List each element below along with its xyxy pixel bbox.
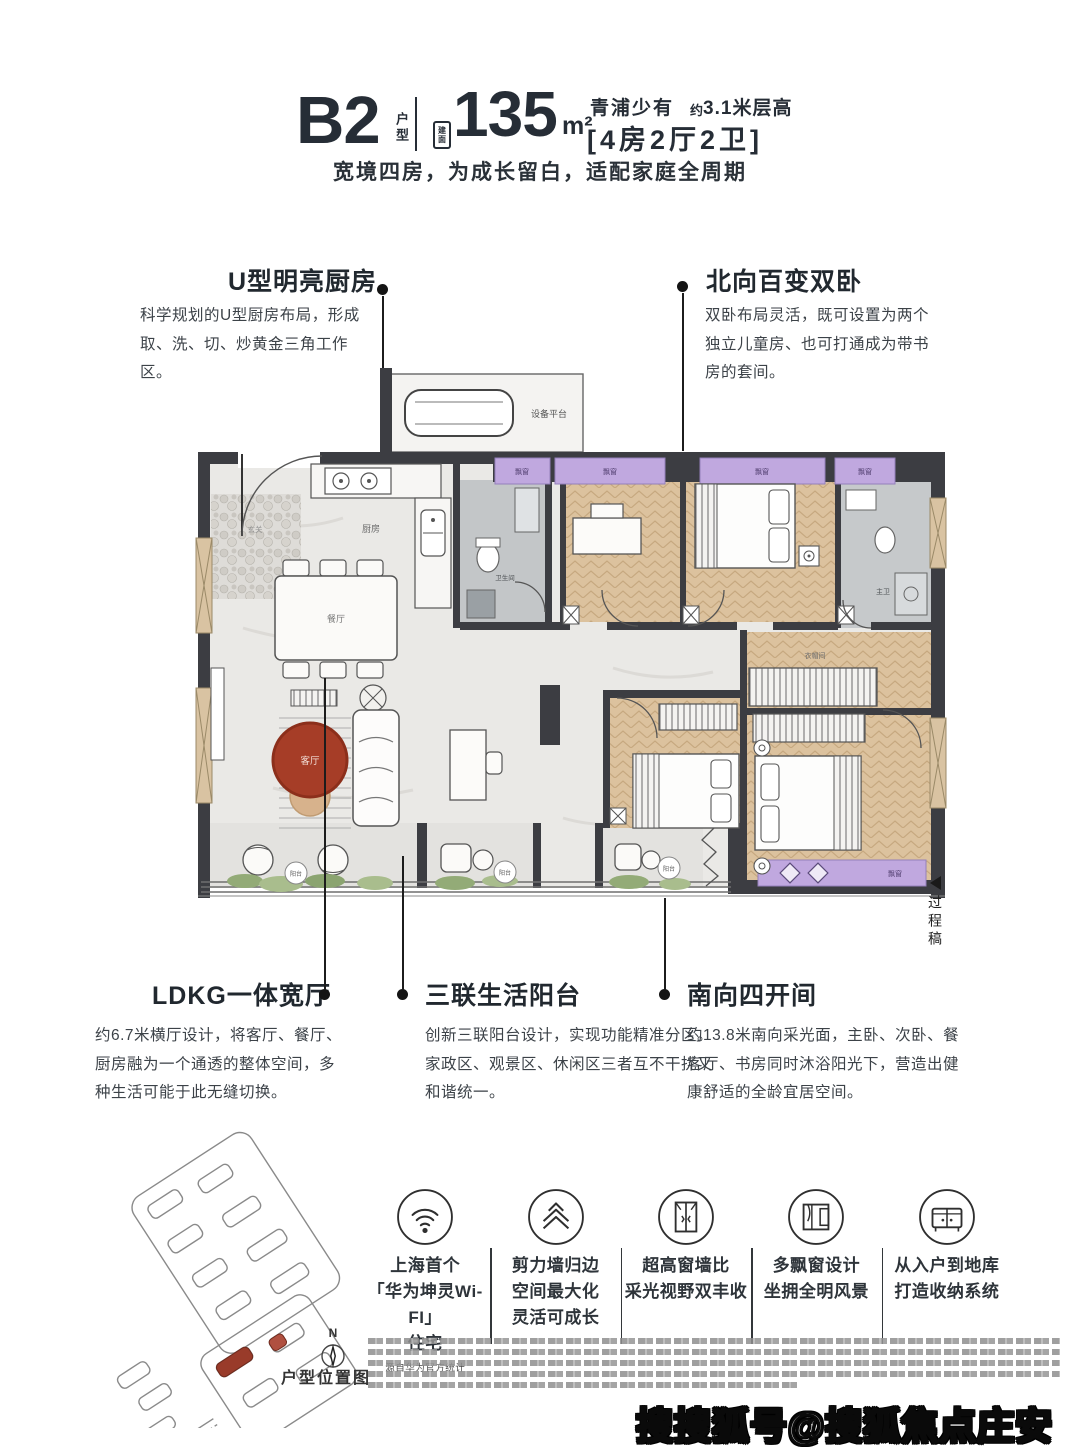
kitchen-label: 厨房 bbox=[362, 523, 380, 534]
callout-south-dot bbox=[659, 989, 670, 1000]
callout-balcony-title: 三联生活阳台 bbox=[425, 976, 581, 1012]
living-label: 客厅 bbox=[300, 755, 320, 767]
feature-divider bbox=[490, 1248, 492, 1344]
balcony-label: 阳台 bbox=[663, 865, 675, 873]
callout-kitchen-dot bbox=[377, 284, 388, 295]
bathroom-label: 卫生间 bbox=[495, 573, 515, 582]
tall-window-icon bbox=[657, 1188, 715, 1246]
header-divider bbox=[415, 97, 417, 151]
dining-area: 餐厅 bbox=[275, 560, 397, 678]
balcony-label: 阳台 bbox=[290, 870, 302, 878]
callout-ldkg-body: 约6.7米横厅设计，将客厅、餐厅、厨房融为一个通透的整体空间，多种生活可能于此无… bbox=[95, 1022, 345, 1108]
left-triangle-icon bbox=[930, 876, 941, 890]
wifi-icon bbox=[396, 1188, 454, 1246]
bay-window-label: 飘窗 bbox=[603, 467, 617, 476]
callout-kitchen-title: U型明亮厨房 bbox=[228, 262, 377, 298]
callout-north-title: 北向百变双卧 bbox=[706, 262, 862, 298]
master-bedroom bbox=[753, 714, 865, 874]
tagline-left: 青浦少有 bbox=[590, 93, 674, 120]
callout-ldkg-line bbox=[324, 678, 326, 990]
area-badge: 建面 bbox=[433, 121, 451, 149]
dining-label: 餐厅 bbox=[327, 613, 345, 624]
subtitle: 宽境四房，为成长留白，适配家庭全周期 bbox=[0, 156, 1080, 186]
watermark: 搜搜狐号@搜狐焦点庄安站 bbox=[636, 1396, 1080, 1450]
unit-code: B2 bbox=[296, 82, 380, 159]
compass-n-label: N bbox=[316, 1326, 350, 1340]
draft-note: 过程稿 bbox=[925, 876, 945, 949]
bay-window-label: 飘窗 bbox=[515, 467, 529, 476]
callout-south-line bbox=[664, 898, 666, 990]
equipment-platform-label: 设备平台 bbox=[531, 408, 567, 419]
callout-balcony-line bbox=[402, 856, 404, 990]
floorplan-poster: B2 户型 建面 135 m² 青浦少有 约 3.1米层高 [4房2厅2卫] 宽… bbox=[0, 0, 1080, 1450]
bay-window-icon bbox=[787, 1188, 845, 1246]
feature-divider bbox=[882, 1248, 884, 1344]
shear-wall-icon bbox=[527, 1188, 585, 1246]
callout-balcony-body: 创新三联阳台设计，实现功能精准分区。家政区、观景区、休闲区三者互不干扰又和谐统一… bbox=[425, 1022, 717, 1108]
callout-ldkg-dot bbox=[319, 989, 330, 1000]
siteplan-label: 户型位置图 bbox=[281, 1364, 371, 1388]
tagline-right: 3.1米层高 bbox=[703, 93, 792, 120]
feature-divider bbox=[621, 1248, 623, 1344]
closet-label: 衣帽间 bbox=[805, 651, 826, 660]
storage-icon bbox=[918, 1188, 976, 1246]
callout-balcony-dot bbox=[397, 989, 408, 1000]
master-bath-label: 主卫 bbox=[876, 587, 890, 596]
disclaimer-text-block bbox=[368, 1338, 1060, 1393]
layout-spec: [4房2厅2卫] bbox=[587, 118, 763, 157]
floorplan-drawing: 设备平台 bbox=[183, 368, 958, 958]
feature-divider bbox=[751, 1248, 753, 1344]
equipment-platform: 设备平台 bbox=[380, 368, 583, 454]
entry-label: 玄关 bbox=[248, 524, 263, 534]
callout-ldkg-title: LDKG一体宽厅 bbox=[152, 976, 331, 1012]
header-tagline: 青浦少有 约 3.1米层高 bbox=[590, 93, 792, 120]
tagline-approx: 约 bbox=[690, 100, 703, 119]
unit-suffix: 户型 bbox=[392, 112, 411, 144]
callout-south-title: 南向四开间 bbox=[687, 976, 817, 1012]
callout-north-dot bbox=[677, 281, 688, 292]
area-value: 135 bbox=[453, 77, 557, 151]
bay-window-label: 飘窗 bbox=[858, 467, 872, 476]
bay-window-label: 飘窗 bbox=[755, 467, 769, 476]
callout-south-body: 约13.8米南向采光面，主卧、次卧、餐客厅、书房同时沐浴阳光下，营造出健康舒适的… bbox=[687, 1022, 965, 1108]
bay-window-label: 飘窗 bbox=[888, 869, 902, 878]
balcony-label: 阳台 bbox=[499, 869, 511, 877]
